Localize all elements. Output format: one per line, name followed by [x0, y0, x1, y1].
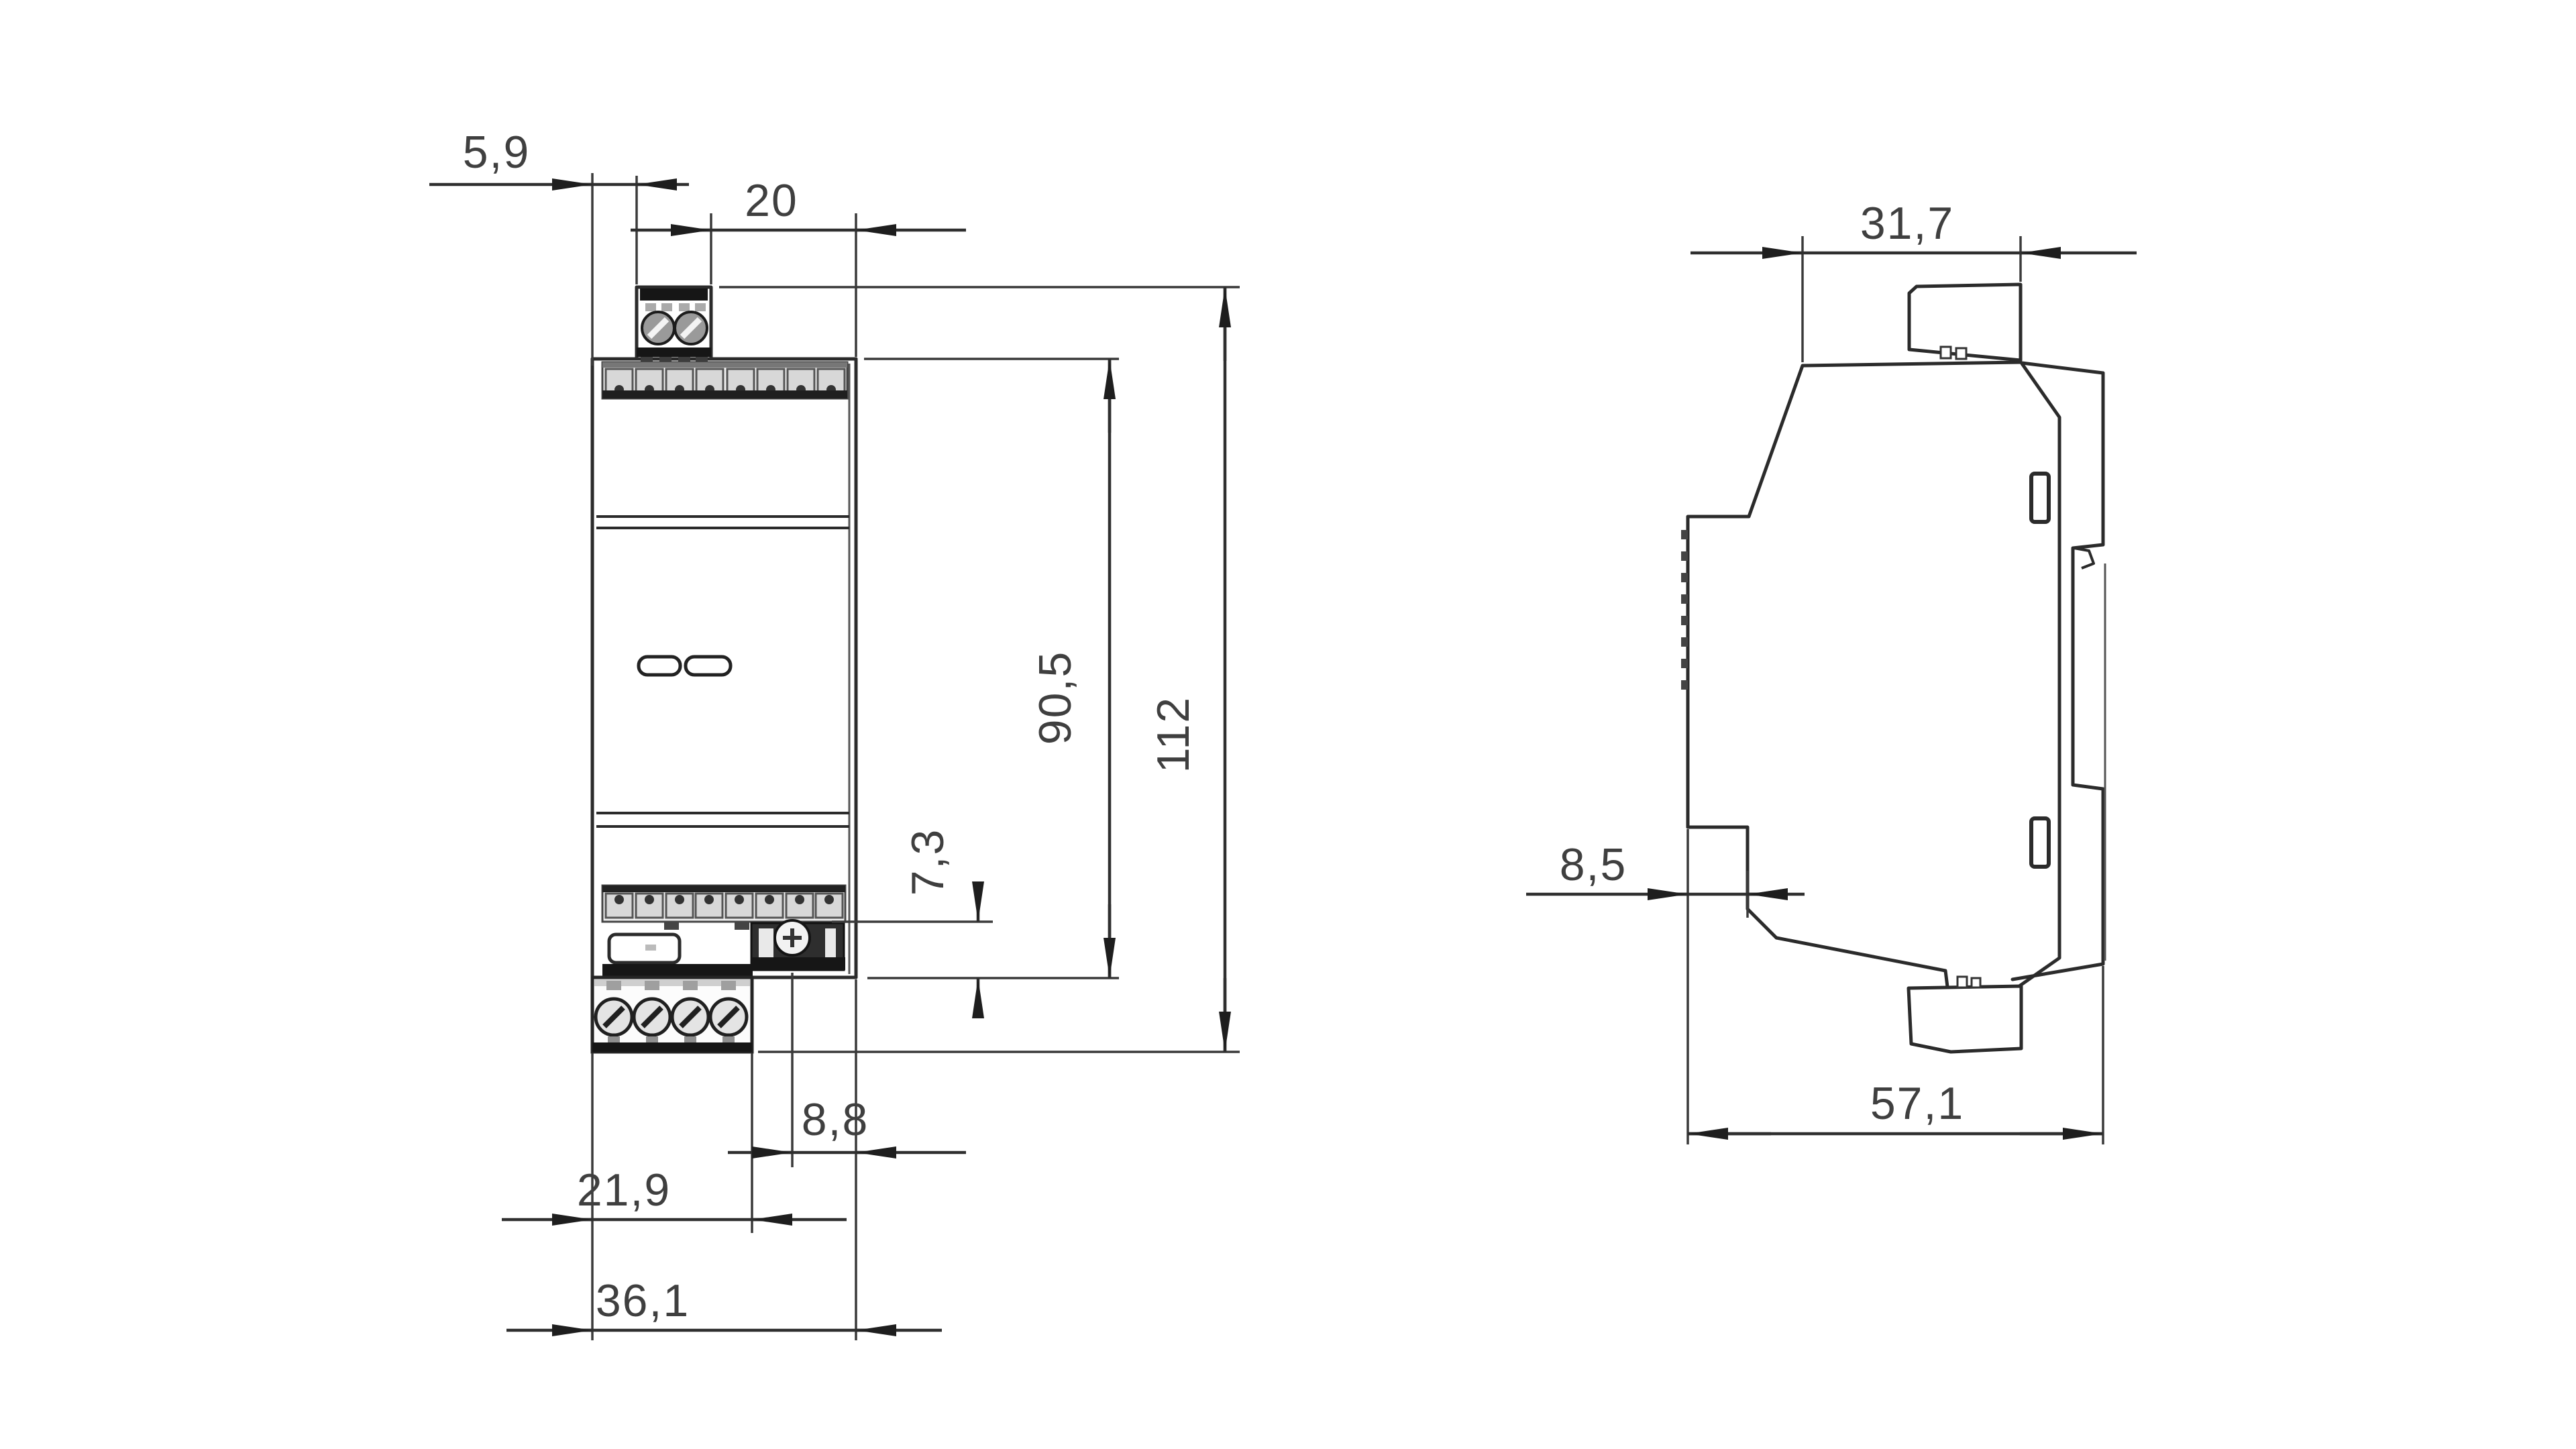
dim-label-left-offset: 5,9 — [463, 127, 531, 178]
terminal-bottom-bar — [637, 347, 711, 357]
dim-connector-to-edge: 8,8 — [728, 1094, 966, 1152]
front-view-dimensions: 5,9 20 90,5 112 7,3 — [429, 127, 1240, 1340]
dimension-drawing: 5,9 20 90,5 112 7,3 — [0, 0, 2576, 1449]
connector-slot — [825, 928, 836, 962]
dim-label-total-width: 36,1 — [596, 1275, 690, 1326]
block-bottom-bar — [592, 1042, 752, 1052]
strip-top-bar — [602, 885, 845, 892]
dim-total-depth: 57,1 — [1688, 1078, 2103, 1134]
dim-label-notch-depth: 8,5 — [1560, 839, 1627, 890]
dim-terminal-width: 21,9 — [502, 1165, 847, 1220]
dim-label-front-depth: 31,7 — [1860, 198, 1954, 249]
dim-label-total-depth: 57,1 — [1870, 1078, 1964, 1129]
connector-bottom-bar — [751, 957, 845, 970]
led-indicator — [639, 657, 680, 675]
dim-housing-height: 90,5 — [1030, 359, 1110, 978]
drawing-page: 5,9 20 90,5 112 7,3 — [0, 0, 2576, 1449]
strip-foot — [664, 922, 679, 930]
terminal-tab — [645, 303, 656, 311]
terminal-tab — [679, 303, 690, 311]
strip-foot — [735, 922, 749, 930]
din-clip-hook — [2074, 548, 2094, 568]
terminal-screw — [675, 312, 707, 344]
terminal-cap — [640, 288, 708, 301]
strip-bottom-bar — [602, 390, 847, 398]
terminal-tab — [695, 303, 706, 311]
top-terminal-strip — [602, 362, 847, 398]
led-indicator — [686, 657, 731, 675]
dim-front-depth: 31,7 — [1690, 198, 2137, 253]
section-bottom-bar — [602, 964, 753, 977]
dim-notch-depth: 8,5 — [1526, 839, 1805, 894]
label-window — [609, 934, 680, 963]
side-view-dimensions: 31,7 8,5 57,1 — [1526, 198, 2137, 1144]
profile-rear-top-slant — [2022, 363, 2103, 373]
bottom-terminal-block — [592, 977, 752, 1052]
dim-label-housing-height: 90,5 — [1030, 651, 1081, 745]
dim-left-offset: 5,9 — [429, 127, 689, 184]
profile-front-top — [1688, 362, 2021, 827]
tab-notch — [1941, 347, 1951, 358]
terminal-screw — [596, 999, 632, 1035]
terminal-screw — [710, 999, 747, 1035]
terminal-tab — [661, 303, 672, 311]
connector-slot — [759, 928, 773, 962]
connector-screw — [775, 920, 810, 955]
dim-label-connector-height: 7,3 — [902, 828, 953, 896]
top-terminal-block — [637, 287, 711, 364]
tab-notch — [1956, 348, 1966, 359]
strip-top-bar — [602, 362, 847, 368]
block-tab — [606, 981, 621, 990]
block-tab — [645, 981, 659, 990]
dim-label-total-height: 112 — [1148, 696, 1199, 773]
clip-window-lower — [2031, 818, 2049, 867]
foot-notch — [1957, 977, 1967, 987]
connector-section — [602, 920, 845, 977]
front-view — [592, 287, 856, 1052]
terminal-screw — [642, 312, 674, 344]
dim-total-height: 112 — [1148, 287, 1225, 1052]
profile-inner-back-wall — [2019, 364, 2059, 986]
mounting-foot — [1909, 977, 2021, 1052]
front-panel — [596, 517, 849, 826]
status-leds — [639, 657, 731, 675]
side-view — [1681, 284, 2105, 1052]
block-tab — [683, 981, 698, 990]
dim-label-terminal-width: 21,9 — [577, 1165, 671, 1216]
profile-notch-bottom — [1688, 827, 1947, 987]
label-mark — [645, 945, 656, 951]
terminal-screw — [634, 999, 670, 1035]
foot-notch — [1972, 978, 1980, 987]
dim-total-width: 36,1 — [506, 1275, 942, 1330]
release-tab — [1909, 284, 2021, 360]
clip-window-upper — [2031, 474, 2049, 522]
terminal-screw — [672, 999, 708, 1035]
block-tab — [721, 981, 736, 990]
dim-label-right-width: 20 — [745, 175, 798, 226]
dim-label-connector-to-edge: 8,8 — [802, 1094, 869, 1145]
